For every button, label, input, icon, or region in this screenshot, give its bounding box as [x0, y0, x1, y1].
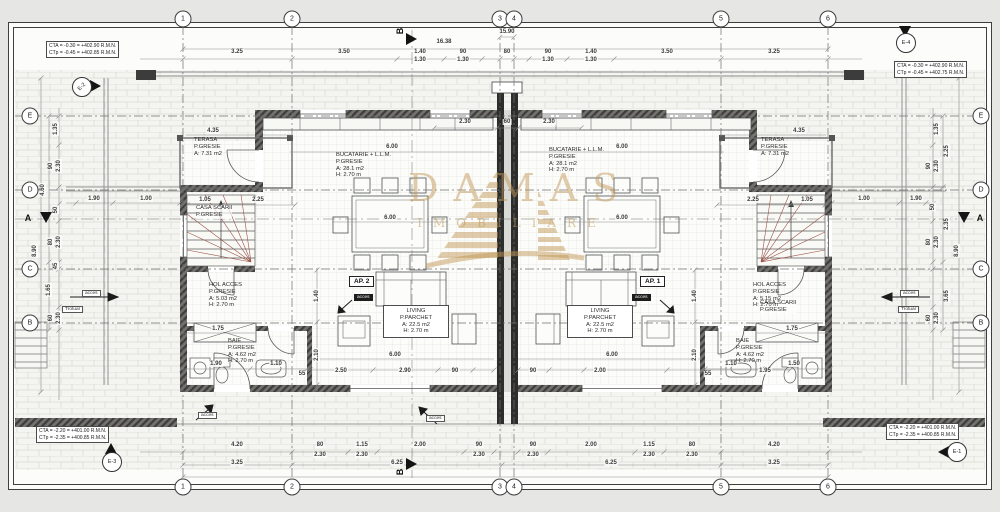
grid-bubble-top-6: 6	[820, 11, 837, 28]
dim-label: 1.30	[413, 57, 427, 63]
dim-label: 4.35	[206, 128, 220, 134]
dim-label: 1.30	[584, 57, 598, 63]
dim-label: 3.25	[230, 49, 244, 55]
dim-label: 2.00	[584, 442, 598, 448]
grid-bubble-bottom-2: 2	[284, 479, 301, 496]
dim-label: 6.00	[605, 352, 619, 358]
trotuar-tag-left: Trotuar	[62, 306, 83, 313]
dim-label: 2.50	[334, 368, 348, 374]
section-a-arrow-left	[40, 212, 52, 223]
section-a-arrow-right	[958, 212, 970, 223]
level-note-line: CTA = -0.30 = +402.90 R.M.N.	[49, 43, 116, 50]
dim-label: 16.38	[435, 39, 452, 45]
dim-label: 1.00	[857, 196, 871, 202]
dim-label: 2.30	[542, 119, 556, 125]
plan-geometry	[0, 0, 1000, 512]
room-label-kitchen-left: BUCATARIE + L.L.M. P.GRESIE A: 28.1 m2 H…	[336, 152, 391, 179]
dim-label: 1.40	[314, 289, 320, 303]
grid-bubble-right-C: C	[973, 261, 990, 278]
dim-label: 4.20	[230, 442, 244, 448]
room-label-terasa-left: TERASA P.GRESIE A: 7.31 m2	[194, 137, 222, 157]
dim-label: 2.30	[56, 159, 62, 173]
grid-bubble-bottom-1: 1	[175, 479, 192, 496]
dim-label: 2.30	[56, 311, 62, 325]
room-label-terasa-right: TERASA P.GRESIE A: 7.31 m2	[761, 137, 789, 157]
level-note-line: CTA = -0.30 = +402.90 R.M.N.	[897, 63, 964, 70]
dim-label: 55	[298, 371, 307, 377]
dim-label: 1.40	[584, 49, 598, 55]
dim-label: 2.25	[944, 144, 950, 158]
dim-label: 3.50	[337, 49, 351, 55]
dim-label: 2.30	[934, 311, 940, 325]
grid-bubble-top-2: 2	[284, 11, 301, 28]
dim-label: 2.10	[692, 348, 698, 362]
dim-label: 1.35	[53, 122, 59, 136]
dim-label: 90	[926, 162, 932, 171]
level-note-line: CTp = -0.45 = +402.75 R.M.N.	[897, 70, 964, 77]
dim-label: 6.00	[388, 352, 402, 358]
grid-bubble-right-D: D	[973, 182, 990, 199]
elevation-marker-e4: E-4	[896, 33, 916, 53]
dim-label: 90	[544, 49, 553, 55]
room-label-hol-right: HOL ACCES P.GRESIE A: 5.15 m2 H: 2.70 m	[753, 282, 786, 309]
level-note-line: CTp = -2.35 = +400.85 R.M.N.	[39, 435, 106, 442]
dim-label: 1.30	[456, 57, 470, 63]
dim-label: 90	[459, 49, 468, 55]
dim-label: 3.25	[767, 460, 781, 466]
dim-label: 2.30	[934, 235, 940, 249]
dim-label: 1.35	[934, 122, 940, 136]
grid-bubble-left-E: E	[22, 108, 39, 125]
dim-label: 1.00	[139, 196, 153, 202]
dim-label: 1.90	[209, 361, 223, 367]
dim-label: 2.30	[56, 235, 62, 249]
staircase-right	[757, 195, 825, 266]
dim-label: 50	[930, 203, 936, 212]
trotuar-tag-right: Trotuar	[898, 306, 919, 313]
section-a-label-right: A	[977, 213, 984, 223]
dim-label: 6.25	[604, 460, 618, 466]
section-a-label-left: A	[25, 213, 32, 223]
dim-label: 1.15	[355, 442, 369, 448]
level-note-line: CTp = -2.35 = +400.85 R.M.N.	[889, 432, 956, 439]
acces-tag-left: acces	[82, 290, 101, 297]
level-note-line: CTp = -0.45 = +402.85 R.M.N.	[49, 50, 116, 57]
dim-label: 1.30	[541, 57, 555, 63]
dim-label: 50	[53, 206, 59, 215]
dim-label: 1.10	[724, 361, 738, 367]
grid-bubble-top-4: 4	[506, 11, 523, 28]
grid-bubble-right-B: B	[973, 315, 990, 332]
dim-label: 2.10	[314, 348, 320, 362]
dim-label: 1.65	[46, 283, 52, 297]
grid-bubble-left-D: D	[22, 182, 39, 199]
dim-label: 45	[53, 262, 59, 271]
dim-label: 80	[503, 49, 512, 55]
dim-label: 2.25	[746, 197, 760, 203]
dim-label: 55	[704, 371, 713, 377]
grid-bubble-top-5: 5	[713, 11, 730, 28]
dim-label: 1.40	[692, 289, 698, 303]
grid-bubble-bottom-5: 5	[713, 479, 730, 496]
room-label-baie-right: BAIE P.GRESIE A: 4.62 m2 H: 2.70 m	[736, 338, 764, 365]
dim-label: 6.25	[390, 460, 404, 466]
dim-label: 2.00	[593, 368, 607, 374]
dim-label: 3.25	[767, 49, 781, 55]
acces-tag-right: acces	[900, 290, 919, 297]
room-label-living-right: LIVING P.PARCHET A: 22.5 m2 H: 2.70 m	[567, 305, 633, 338]
dim-label: 6.00	[385, 144, 399, 150]
dim-label: 90	[451, 368, 460, 374]
dim-label: 15.90	[498, 29, 515, 35]
dim-label: 2.35	[944, 217, 950, 231]
dim-label: 3.65	[944, 289, 950, 303]
apartment-tag-ap2: AP. 2	[349, 276, 374, 287]
dim-label: 2.30	[526, 452, 540, 458]
room-label-stair-left: CASA SCARII P.GRESIE	[196, 205, 232, 219]
dim-label: 2.30	[355, 452, 369, 458]
dim-label: 3.50	[660, 49, 674, 55]
dim-label: 1.50	[787, 361, 801, 367]
dim-label: 2.25	[251, 197, 265, 203]
elevation-marker-e3: E-3	[102, 452, 122, 472]
dim-label: 80	[316, 442, 325, 448]
room-label-living-left: LIVING P.PARCHET A: 22.5 m2 H: 2.70 m	[383, 305, 449, 338]
acces-tag-ap1: acces	[632, 294, 651, 301]
dim-label: 4.60	[40, 183, 46, 197]
floor-plan-viewer: DAMAS IMOBILIARE 1 2 3 4 5 6 1 2 3 4 5 6…	[0, 0, 1000, 512]
dim-label: 1.75	[785, 326, 799, 332]
room-label-baie-left: BAIE P.GRESIE A: 4.62 m2 H: 2.70 m	[228, 338, 256, 365]
dim-label: 3.25	[230, 460, 244, 466]
grid-bubble-bottom-4: 4	[506, 479, 523, 496]
grid-bubble-right-E: E	[973, 108, 990, 125]
level-note-line: CTA = -2.20 = +401.00 R.M.N.	[889, 425, 956, 432]
dim-label: 1.15	[642, 442, 656, 448]
dim-label: 80	[926, 238, 932, 247]
dim-label: 1.75	[211, 326, 225, 332]
section-b-arrow-top	[406, 33, 417, 45]
dim-label: 90	[529, 442, 538, 448]
dim-label: 60	[48, 314, 54, 323]
dim-label: 2.30	[472, 452, 486, 458]
acces-tag-bottom-left: acces	[198, 412, 217, 419]
dim-label: 6.00	[615, 215, 629, 221]
level-note-bottom-right: CTA = -2.20 = +401.00 R.M.N. CTp = -2.35…	[886, 423, 959, 440]
grid-bubble-top-1: 1	[175, 11, 192, 28]
grid-bubble-left-C: C	[22, 261, 39, 278]
apartment-tag-ap1: AP. 1	[640, 276, 665, 287]
elevation-marker-e1: E-1	[947, 442, 967, 462]
section-b-label-top: B	[395, 28, 405, 35]
room-label-hol-left: HOL ACCES P.GRESIE A: 5.03 m2 H: 2.70 m	[209, 282, 242, 309]
dim-label: 2.30	[934, 159, 940, 173]
dim-label: 4.20	[767, 442, 781, 448]
level-note-top-right: CTA = -0.30 = +402.90 R.M.N. CTp = -0.45…	[894, 61, 967, 78]
dim-label: 2.00	[413, 442, 427, 448]
dim-label: 8.90	[32, 244, 38, 258]
dim-label: 60	[926, 314, 932, 323]
dim-label: 2.30	[685, 452, 699, 458]
dim-label: 1.95	[758, 368, 772, 374]
dim-label: 1.90	[909, 196, 923, 202]
dim-label: 6.00	[615, 144, 629, 150]
dim-label: 2.30	[642, 452, 656, 458]
section-b-label-bottom: B	[395, 469, 405, 476]
dim-label: 60	[503, 119, 512, 125]
dim-label: 6.00	[383, 215, 397, 221]
dim-label: 90	[529, 368, 538, 374]
dim-label: 1.05	[198, 197, 212, 203]
dim-label: 4.35	[792, 128, 806, 134]
dim-label: 2.30	[458, 119, 472, 125]
section-b-arrow-bottom	[406, 458, 417, 470]
grid-bubble-left-B: B	[22, 315, 39, 332]
grid-bubble-bottom-6: 6	[820, 479, 837, 496]
level-note-bottom-left: CTA = -2.20 = +401.00 R.M.N. CTp = -2.35…	[36, 426, 109, 443]
dim-label: 8.90	[954, 244, 960, 258]
dim-label: 2.30	[313, 452, 327, 458]
acces-tag-bottom-center: acces	[426, 415, 445, 422]
dim-label: 1.90	[87, 196, 101, 202]
acces-tag-ap2: acces	[354, 294, 373, 301]
dim-label: 2.90	[398, 368, 412, 374]
dim-label: 90	[48, 162, 54, 171]
dim-label: 1.40	[413, 49, 427, 55]
dim-label: 1.05	[800, 197, 814, 203]
dim-label: 80	[48, 238, 54, 247]
dim-label: 1.10	[269, 361, 283, 367]
level-note-top-left: CTA = -0.30 = +402.90 R.M.N. CTp = -0.45…	[46, 41, 119, 58]
room-label-kitchen-right: BUCATARIE + L.L.M. P.GRESIE A: 28.1 m2 H…	[549, 147, 604, 174]
dim-label: 90	[475, 442, 484, 448]
level-note-line: CTA = -2.20 = +401.00 R.M.N.	[39, 428, 106, 435]
dim-label: 80	[688, 442, 697, 448]
